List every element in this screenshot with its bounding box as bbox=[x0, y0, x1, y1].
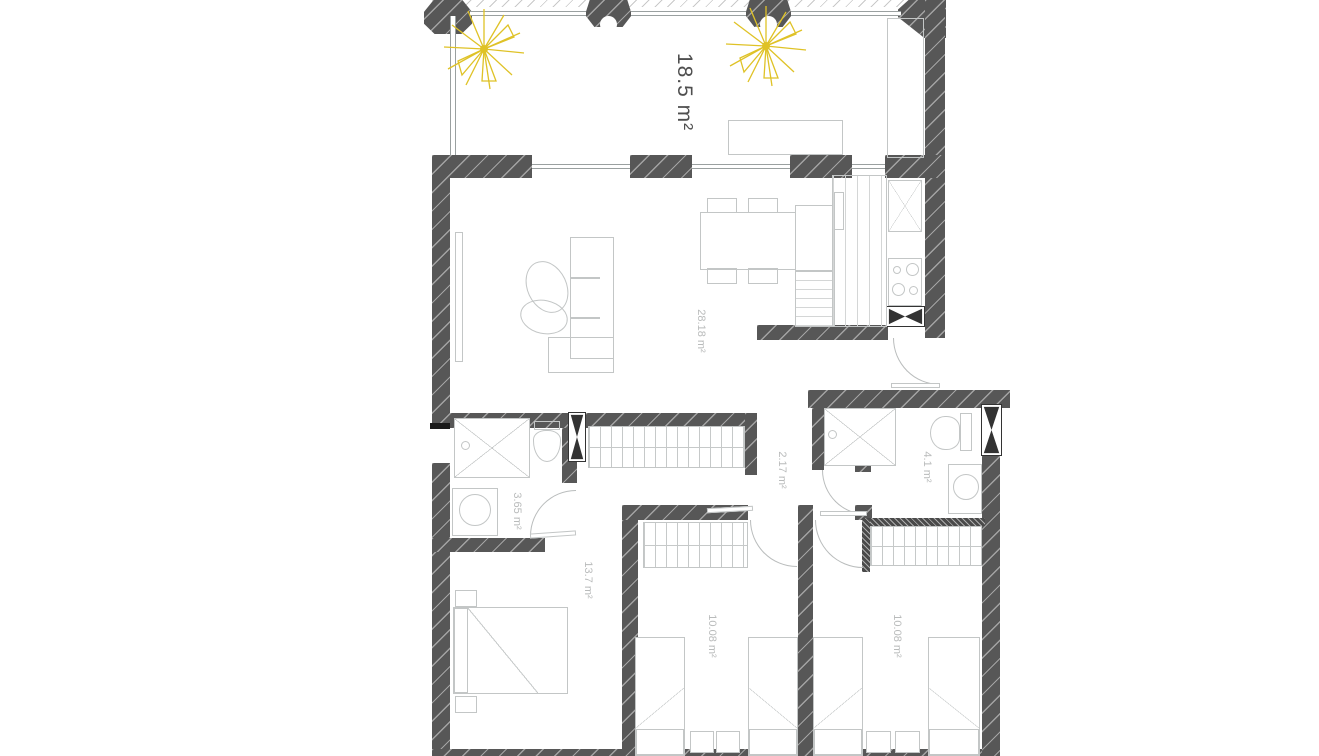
kitchen-island bbox=[795, 205, 835, 271]
duct-symbol-kitchen bbox=[886, 306, 925, 327]
terrace-area-label: 18.5 m² bbox=[672, 53, 696, 131]
single-bed bbox=[748, 637, 798, 756]
sofa-cushion bbox=[570, 317, 600, 319]
bed-fold-line bbox=[468, 608, 538, 693]
right-exterior-wall-lower bbox=[982, 455, 1000, 756]
terrace-pillar-mid-left-notch bbox=[600, 16, 617, 33]
bedroom1-area-label: 13.7 m² bbox=[582, 561, 594, 598]
living-top-wall-b bbox=[630, 155, 692, 178]
bathroom2-area-label: 4.1 m² bbox=[921, 451, 933, 482]
bowtie-icon bbox=[982, 405, 1001, 455]
kitchen-bottom-wall bbox=[757, 325, 888, 340]
nightstand bbox=[895, 731, 920, 753]
bedroom2-bedroom3-divider bbox=[798, 505, 813, 756]
bath1-bottom-wall bbox=[432, 538, 545, 552]
sliding-door-2 bbox=[692, 164, 790, 169]
double-bed bbox=[453, 607, 568, 694]
bowtie-icon bbox=[887, 307, 924, 326]
hall-wardrobe-right-wall bbox=[745, 413, 757, 475]
wardrobe-bedroom2 bbox=[643, 522, 748, 568]
toilet-tank bbox=[534, 421, 560, 430]
bathroom1-area-label: 3.65 m² bbox=[511, 492, 523, 529]
toilet-bowl bbox=[930, 416, 960, 450]
kitchen-cabinet bbox=[834, 192, 844, 230]
nightstand bbox=[455, 696, 477, 713]
left-wall-window bbox=[430, 423, 450, 429]
duct-symbol-bath1 bbox=[568, 412, 586, 462]
hallway-area-label: 2.17 m² bbox=[776, 451, 788, 488]
toilet-bowl bbox=[533, 430, 561, 462]
hob-burner bbox=[892, 283, 905, 296]
terrace-table bbox=[728, 120, 843, 155]
bath2-top-wall bbox=[808, 390, 1010, 408]
window-symbol-bath2 bbox=[981, 404, 1002, 456]
wardrobe-hall bbox=[588, 426, 745, 468]
washing-machine-drum bbox=[459, 494, 491, 526]
kitchen-hob bbox=[888, 258, 922, 306]
palm-plant-icon bbox=[438, 3, 530, 95]
bedroom3-door-arc bbox=[815, 520, 863, 568]
terrace-counter bbox=[887, 18, 924, 158]
single-bed bbox=[635, 637, 685, 756]
bed-fold-line bbox=[929, 688, 979, 728]
single-bed bbox=[928, 637, 980, 756]
bed-fold-line bbox=[636, 688, 684, 728]
bathroom2-door-arc bbox=[822, 470, 867, 515]
dining-chair bbox=[707, 268, 737, 284]
bed-pillow bbox=[454, 608, 468, 693]
shower-drain bbox=[461, 441, 470, 450]
sliding-door-1 bbox=[532, 164, 630, 169]
bed-pillow bbox=[814, 729, 862, 755]
wardrobe-bedroom3 bbox=[870, 526, 982, 566]
hob-burner bbox=[893, 266, 901, 274]
living-top-wall-d bbox=[885, 155, 945, 178]
nightstand bbox=[690, 731, 714, 753]
hob-burner bbox=[909, 286, 918, 295]
bathroom1-door-arc bbox=[530, 490, 576, 536]
palm-plant-icon bbox=[720, 0, 812, 92]
bed-pillow bbox=[636, 729, 684, 755]
nightstand bbox=[455, 590, 477, 607]
dining-table bbox=[700, 212, 796, 270]
sofa-cushion bbox=[570, 277, 600, 279]
single-bed bbox=[813, 637, 863, 756]
bedroom3-wardrobe-left-wall bbox=[862, 518, 870, 572]
nightstand bbox=[866, 731, 891, 753]
left-exterior-wall-lower bbox=[432, 463, 450, 756]
hob-burner bbox=[906, 263, 919, 276]
left-exterior-wall-upper bbox=[432, 155, 450, 423]
bed-pillow bbox=[929, 729, 979, 755]
floor-plan-canvas: 18.5 m² 28.18 m² 3.65 m² 2.17 m² 4.1 m² … bbox=[0, 0, 1319, 756]
bowtie-icon bbox=[569, 413, 585, 461]
bathroom2-door-leaf bbox=[820, 511, 867, 516]
bed-pillow bbox=[749, 729, 797, 755]
bedroom2-door-arc bbox=[750, 520, 797, 567]
nightstand bbox=[716, 731, 740, 753]
kitchen-drawers bbox=[795, 271, 835, 327]
bath2-left-wall bbox=[812, 408, 824, 470]
entrance-door-leaf bbox=[891, 383, 940, 388]
shower-drain bbox=[828, 430, 837, 439]
dining-chair bbox=[748, 268, 778, 284]
bed-fold-line bbox=[749, 688, 797, 728]
bedroom3-area-label: 10.08 m² bbox=[891, 614, 903, 657]
living-top-wall-a bbox=[432, 155, 532, 178]
bathroom-sink-basin bbox=[953, 474, 979, 500]
entrance-door-arc bbox=[893, 338, 940, 385]
tv-board bbox=[455, 232, 463, 362]
bedroom2-area-label: 10.08 m² bbox=[706, 614, 718, 657]
sliding-door-3 bbox=[852, 164, 885, 169]
kitchen-sink bbox=[888, 180, 922, 232]
toilet-tank bbox=[960, 413, 972, 451]
bedroom3-wardrobe-top-wall bbox=[862, 518, 985, 526]
bed-fold-line bbox=[814, 688, 862, 728]
living-area-label: 28.18 m² bbox=[695, 309, 707, 352]
sofa-chaise bbox=[548, 337, 614, 373]
